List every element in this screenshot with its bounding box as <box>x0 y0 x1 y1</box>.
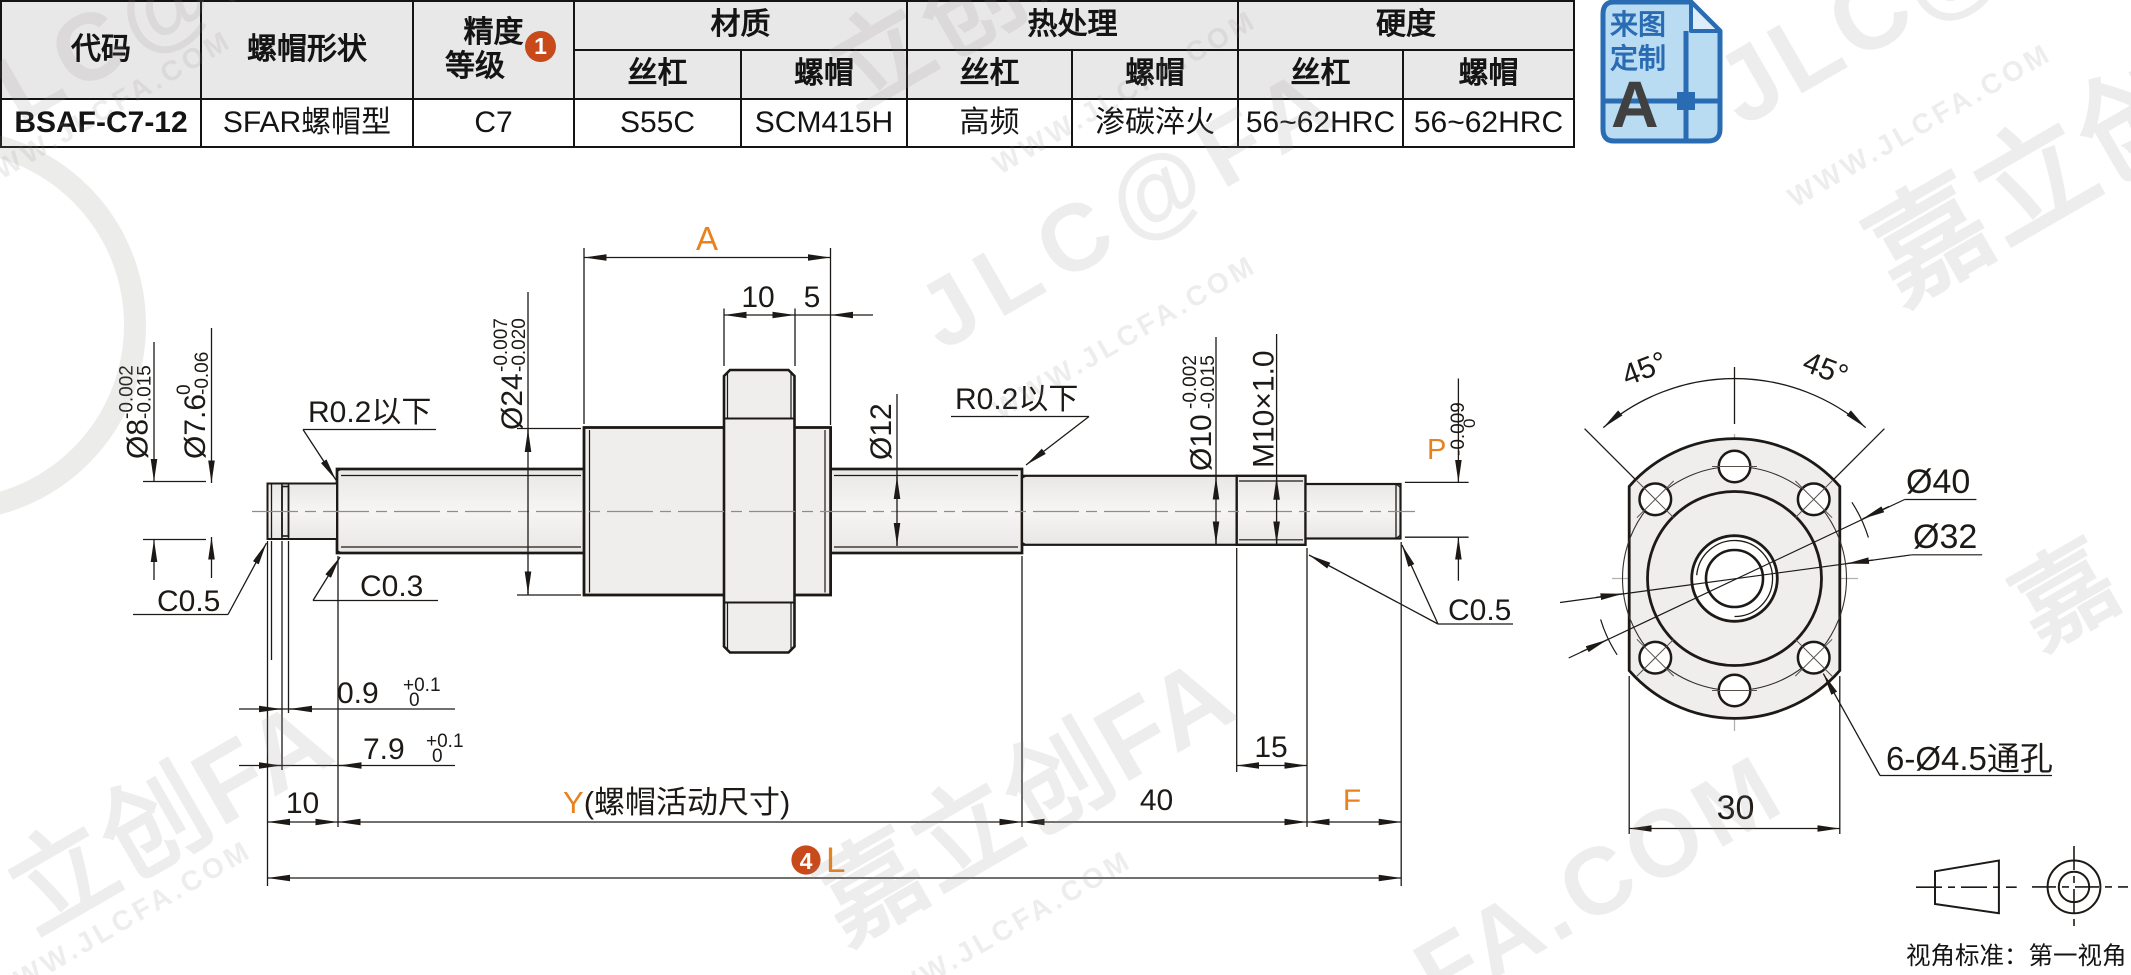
svg-text:Ø32: Ø32 <box>1913 518 1977 556</box>
svg-text:-0.009: -0.009 <box>1448 402 1469 456</box>
svg-text:Ø24: Ø24 <box>496 373 529 430</box>
svg-text:R0.2以下: R0.2以下 <box>955 383 1078 416</box>
svg-text:10: 10 <box>286 787 319 820</box>
svg-text:F: F <box>1343 784 1361 817</box>
svg-text:-0.015: -0.015 <box>1198 355 1219 409</box>
svg-text:7.9: 7.9 <box>363 733 405 766</box>
svg-text:视角标准：第一视角: 视角标准：第一视角 <box>1906 942 2127 970</box>
svg-text:M10×1.0: M10×1.0 <box>1248 350 1281 468</box>
svg-text:-0.020: -0.020 <box>509 318 530 372</box>
svg-text:5: 5 <box>804 281 821 314</box>
svg-text:4: 4 <box>800 848 813 874</box>
svg-text:40: 40 <box>1140 784 1173 817</box>
svg-text:C0.5: C0.5 <box>157 585 220 618</box>
svg-text:L: L <box>826 841 845 880</box>
svg-text:Ø12: Ø12 <box>865 403 898 460</box>
svg-text:15: 15 <box>1254 731 1287 764</box>
svg-text:30: 30 <box>1717 789 1755 827</box>
svg-text:10: 10 <box>741 281 774 314</box>
svg-text:0: 0 <box>1460 419 1479 428</box>
svg-text:Ø8: Ø8 <box>122 419 155 459</box>
svg-text:Ø10: Ø10 <box>1185 414 1218 471</box>
svg-text:0.9: 0.9 <box>337 677 379 710</box>
svg-text:-0.06: -0.06 <box>192 352 213 395</box>
svg-text:C0.5: C0.5 <box>1448 594 1511 627</box>
svg-text:P: P <box>1427 434 1446 466</box>
svg-text:Y(螺帽活动尺寸): Y(螺帽活动尺寸) <box>563 785 790 820</box>
svg-text:45°: 45° <box>1618 346 1672 393</box>
svg-text:R0.2以下: R0.2以下 <box>308 396 431 429</box>
svg-text:Ø7.6: Ø7.6 <box>179 394 212 459</box>
svg-text:0: 0 <box>432 746 443 767</box>
svg-text:45°: 45° <box>1798 346 1852 393</box>
svg-text:A: A <box>696 220 718 257</box>
svg-text:0: 0 <box>409 690 420 711</box>
svg-text:来图: 来图 <box>1610 9 1666 40</box>
svg-text:C0.3: C0.3 <box>360 570 423 603</box>
svg-text:-0.015: -0.015 <box>135 365 156 419</box>
svg-text:Ø40: Ø40 <box>1906 463 1970 501</box>
svg-text:A: A <box>1611 67 1659 141</box>
svg-text:6-Ø4.5通孔: 6-Ø4.5通孔 <box>1886 740 2053 777</box>
